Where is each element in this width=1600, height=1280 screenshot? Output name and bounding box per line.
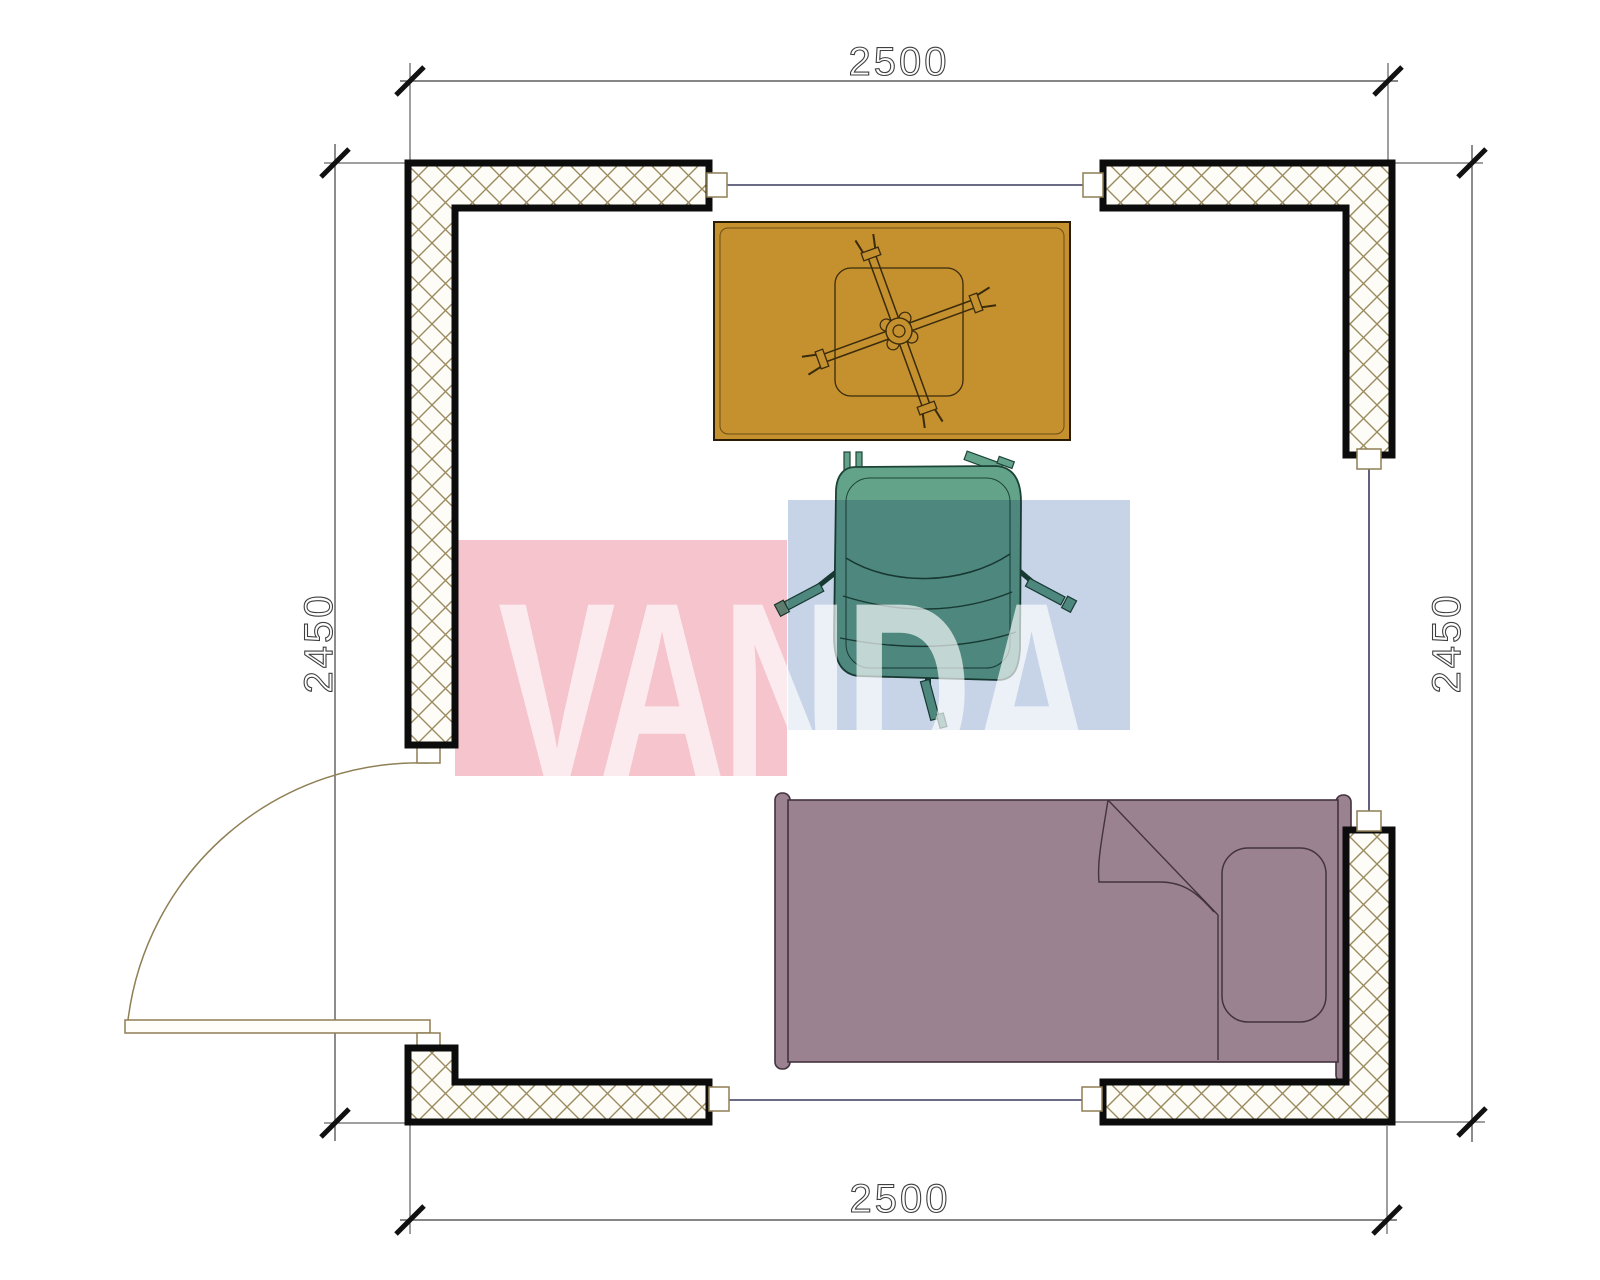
watermark: VANDA <box>455 500 1130 832</box>
dim-label-top: 2500 <box>849 40 950 84</box>
bed-pillow <box>1222 848 1326 1022</box>
window-right <box>1357 449 1381 831</box>
table <box>714 203 1070 459</box>
dimension-bottom: 2500 <box>396 1124 1401 1234</box>
dimension-top: 2500 <box>396 40 1402 161</box>
watermark-text: VANDA <box>498 551 1091 833</box>
window-bottom <box>709 1087 1102 1111</box>
dimension-right: 2450 <box>1391 145 1486 1142</box>
wall-top-right <box>1103 163 1392 455</box>
dim-label-bottom: 2500 <box>850 1177 951 1221</box>
wall-bottom-left <box>408 1048 709 1122</box>
door-swing-arc <box>128 763 429 1020</box>
single-bed <box>775 793 1351 1082</box>
floor-plan-drawing: 2500 2500 2450 2450 <box>0 0 1600 1280</box>
dim-label-left: 2450 <box>297 593 341 694</box>
dim-label-right: 2450 <box>1425 593 1469 694</box>
window-top <box>707 173 1103 197</box>
door-leaf <box>125 1020 430 1033</box>
door <box>125 745 440 1051</box>
